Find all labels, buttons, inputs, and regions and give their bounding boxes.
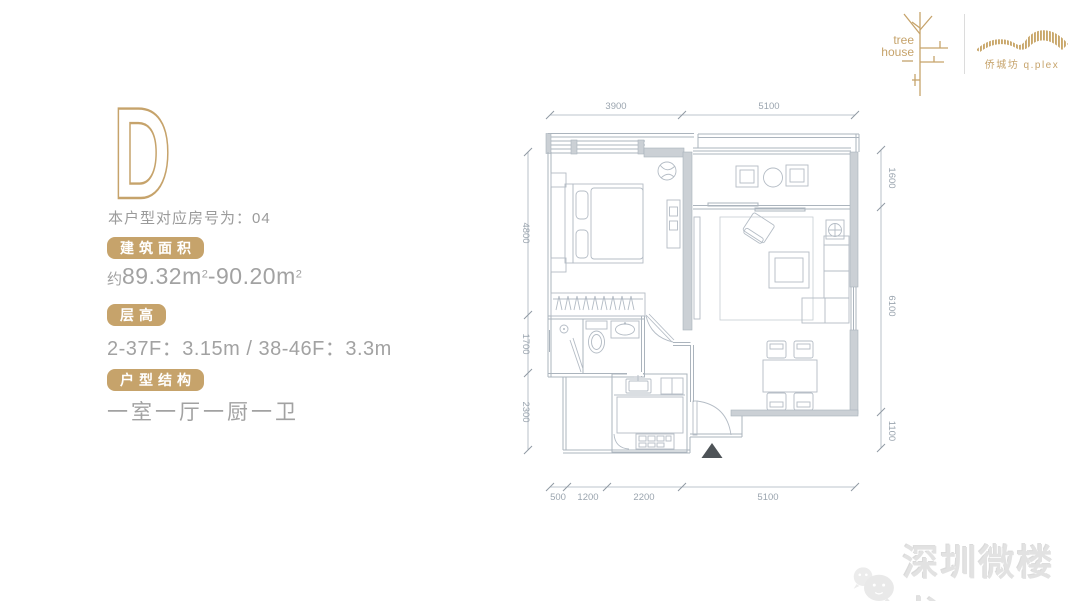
watermark-text: 深圳微楼书 xyxy=(903,534,1080,601)
area-prefix: 约 xyxy=(107,271,122,288)
dim-top-1: 3900 xyxy=(605,101,626,112)
dim-right-1: 1600 xyxy=(886,167,897,188)
dim-bottom-4: 5100 xyxy=(757,492,778,502)
dim-right-3: 1100 xyxy=(886,421,897,441)
unit-type-letter-glyph: D xyxy=(113,103,171,203)
nightstand xyxy=(551,258,566,272)
wechat-icon xyxy=(850,563,899,601)
kitchen-fixtures xyxy=(614,375,685,449)
qplex-logo: 侨城坊 q.plex xyxy=(974,16,1070,78)
bathroom-fixtures xyxy=(560,319,639,373)
area-value-2: -90.20m xyxy=(208,263,296,289)
qplex-arch-icon xyxy=(976,30,1068,52)
sink-icon xyxy=(611,321,639,338)
dim-left-3: 2300 xyxy=(520,401,531,422)
structure-badge: 户型结构 xyxy=(107,369,204,391)
dim-right-2: 6100 xyxy=(886,295,897,316)
structure-value: 一室一厅一厨一卫 xyxy=(107,396,299,426)
dim-bottom-3: 2200 xyxy=(633,492,654,502)
dim-bottom-2: 1200 xyxy=(577,492,598,502)
entry-triangle-marker xyxy=(702,443,723,458)
logo-divider xyxy=(964,14,965,74)
nightstand xyxy=(551,173,566,187)
floor-height-value: 2-37F：3.15m / 38-46F：3.3m xyxy=(107,332,392,361)
wardrobe-icon xyxy=(551,293,645,316)
room-number-note: 本户型对应房号为：04 xyxy=(108,207,271,228)
corner-cabinet xyxy=(614,434,629,449)
dim-bottom-1: 500 xyxy=(550,492,566,502)
tree-logo-small-mark xyxy=(902,60,913,62)
tree-logo-word-2: house xyxy=(881,45,914,59)
watermark: 深圳微楼书 xyxy=(850,534,1080,601)
tree-house-logo: tree house xyxy=(866,6,962,100)
area-sup-2: 2 xyxy=(296,269,302,281)
dim-left-1: 4800 xyxy=(520,222,531,243)
dim-top-2: 5100 xyxy=(758,101,779,112)
coffee-table-icon xyxy=(769,252,809,288)
area-value-1: 89.32m xyxy=(122,263,202,289)
kitchen-sink-icon xyxy=(626,375,651,393)
bedroom-door-icon xyxy=(646,314,674,342)
rug xyxy=(720,217,813,320)
floor-height-badge: 层高 xyxy=(107,304,166,326)
sliding-door xyxy=(693,203,850,211)
entry-door-icon xyxy=(693,401,731,435)
shower-icon xyxy=(560,325,583,372)
floor-plan: 3900 5100 4800 1700 2300 1600 6100 1100 … xyxy=(515,90,915,502)
area-badge: 建筑面积 xyxy=(107,237,204,259)
unit-type-letter-outline: D xyxy=(112,103,186,203)
page: D 本户型对应房号为：04 建筑面积 约89.32m2-90.20m2 层高 2… xyxy=(0,0,1080,601)
dimension-lines: 3900 5100 4800 1700 2300 1600 6100 1100 … xyxy=(520,101,897,502)
toilet-icon xyxy=(586,321,607,353)
stove-icon xyxy=(636,434,674,449)
balcony-furniture xyxy=(736,165,808,187)
unit-type-letter: D xyxy=(112,103,186,203)
tv-console xyxy=(694,217,700,319)
dresser-icon xyxy=(667,200,680,248)
plant-icon xyxy=(658,162,676,180)
area-value: 约89.32m2-90.20m2 xyxy=(107,263,302,290)
bed-icon xyxy=(565,184,643,263)
dim-left-2: 1700 xyxy=(520,333,531,354)
living-furniture xyxy=(694,212,849,323)
dining-set xyxy=(763,341,817,410)
qplex-logo-label: 侨城坊 q.plex xyxy=(985,58,1059,71)
dining-table xyxy=(763,360,817,392)
bedroom-furniture xyxy=(551,162,680,316)
